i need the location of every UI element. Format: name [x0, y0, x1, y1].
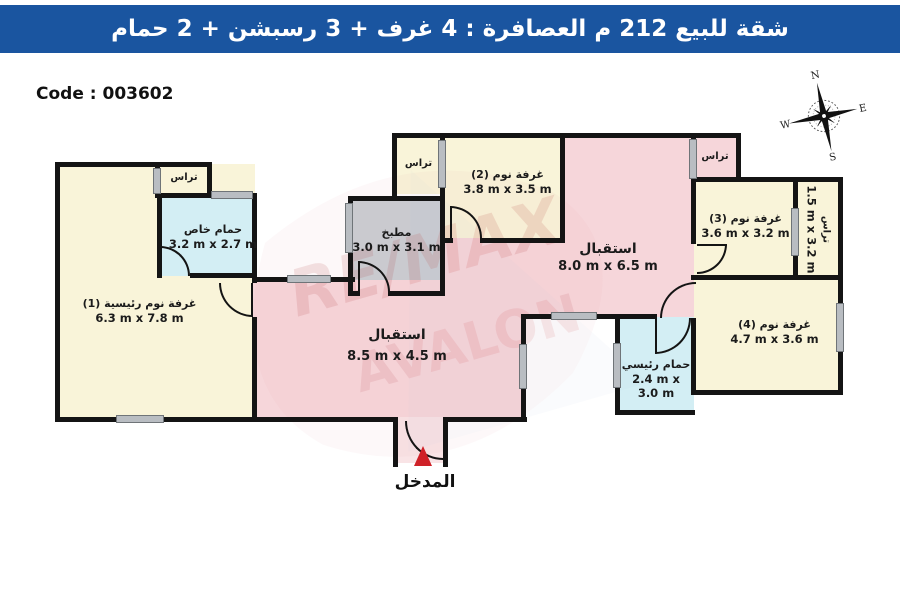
wall — [443, 417, 527, 422]
wall — [348, 196, 445, 201]
compass-rose-icon: N E S W — [778, 66, 870, 166]
window — [116, 415, 164, 423]
floor-plan-page: شقة للبيع 212 م العصافرة : 4 غرف + 3 رسب… — [0, 0, 900, 600]
svg-text:S: S — [828, 152, 837, 164]
wall — [615, 314, 657, 319]
window — [153, 168, 161, 194]
room-master-bedroom-label: غرفة نوم رئيسية (1) 6.3 m x 7.8 m — [67, 297, 212, 325]
wall — [252, 417, 397, 422]
wall — [55, 162, 212, 167]
window — [836, 303, 844, 352]
window — [551, 312, 597, 320]
wall — [252, 317, 257, 422]
wall — [691, 390, 843, 395]
room-kitchen-label: مطبخ 3.0 m x 3.1 m — [350, 226, 443, 254]
room-private-bath-label: حمام خاص 3.2 m x 2.7 m — [168, 223, 258, 251]
room-terrace-master-label: تراس — [163, 172, 205, 185]
svg-text:N: N — [810, 69, 821, 82]
wall — [393, 417, 398, 467]
entrance-arrow-icon — [414, 446, 432, 466]
wall — [445, 238, 453, 243]
room-reception2-label: استقبال 8.0 m x 6.5 m — [548, 241, 668, 275]
room-terrace-kitchen-label: تراس — [396, 158, 441, 171]
wall — [190, 273, 257, 278]
svg-text:W: W — [779, 119, 792, 132]
wall — [691, 177, 843, 182]
room-main-bath-label: حمام رئيسي 2.4 m x 3.0 m — [620, 358, 692, 401]
room-bedroom2-label: غرفة نوم (2) 3.8 m x 3.5 m — [450, 168, 565, 196]
window — [287, 275, 331, 283]
wall — [55, 162, 60, 422]
window — [519, 344, 527, 389]
wall — [691, 275, 843, 280]
wall — [392, 133, 741, 138]
wall — [615, 410, 695, 415]
room-terrace-side-label: تراس 1.5 m x 3.2 m — [771, 200, 866, 258]
wall — [443, 417, 448, 467]
title-bar: شقة للبيع 212 م العصافرة : 4 غرف + 3 رسب… — [0, 5, 900, 53]
svg-text:E: E — [858, 103, 868, 115]
property-code: Code : 003602 — [36, 84, 173, 104]
room-bedroom4-label: غرفة نوم (4) 4.7 m x 3.6 m — [717, 318, 832, 346]
room-terrace-reception-label: تراس — [694, 151, 736, 164]
wall — [736, 133, 741, 182]
entrance-label: المدخل — [385, 472, 465, 492]
wall — [388, 291, 445, 296]
window — [211, 191, 253, 199]
room-reception1-label: استقبال 8.5 m x 4.5 m — [337, 327, 457, 365]
